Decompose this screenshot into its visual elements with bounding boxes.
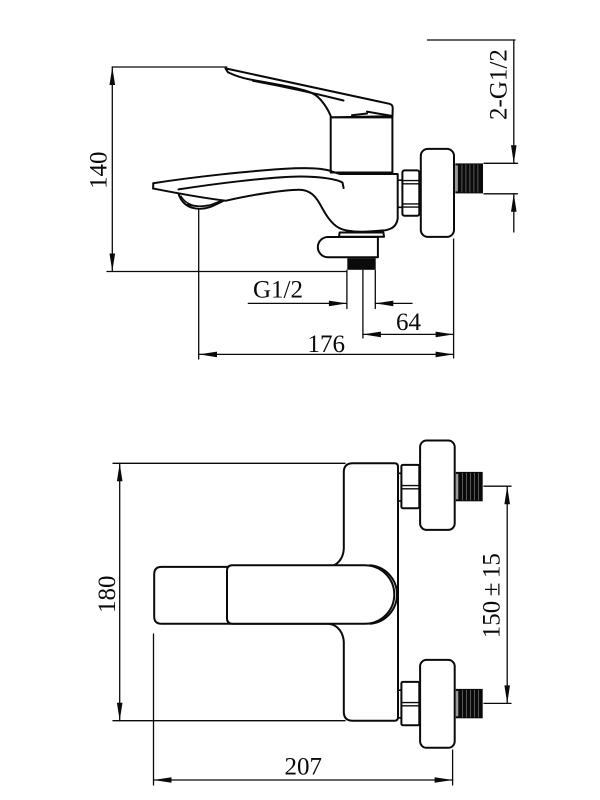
svg-text:180: 180 (94, 576, 121, 614)
svg-text:64: 64 (396, 309, 422, 336)
svg-text:150±15: 150±15 (479, 553, 506, 638)
svg-text:176: 176 (308, 331, 346, 358)
svg-text:2-G1/2: 2-G1/2 (486, 49, 513, 120)
svg-text:207: 207 (285, 754, 323, 781)
svg-text:G1/2: G1/2 (253, 277, 303, 304)
svg-text:140: 140 (86, 152, 113, 190)
